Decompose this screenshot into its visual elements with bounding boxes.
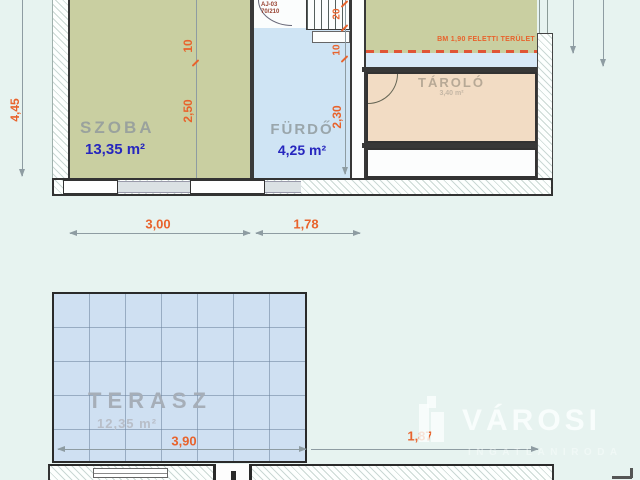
attic-room-upper-area <box>366 0 537 53</box>
dimension-line-szoba-vertical <box>196 0 197 178</box>
szoba-label: SZOBA <box>80 118 155 138</box>
lower-right-wall-corner <box>612 476 632 479</box>
left-exterior-wall <box>52 0 70 196</box>
watermark-brand: VÁROSI <box>462 404 601 438</box>
right-railing-lines <box>539 0 548 33</box>
lower-window <box>93 468 168 478</box>
lower-right-wall-corner-vertical <box>630 468 633 478</box>
dimension-line-left-height <box>22 0 23 176</box>
dimension-arrow-top-right-2 <box>603 0 604 66</box>
height-note-label: BM 1,90 FELETTI TERÜLET <box>366 36 535 43</box>
dimension-label-furdo-width: 1,78 <box>293 217 318 232</box>
dimension-label-szoba-d1: 10 <box>181 39 195 52</box>
dimension-label-left-height: 4,45 <box>8 98 22 121</box>
door-tag-size: 70/210 <box>261 9 279 16</box>
dimension-label-stair-d2: 10 <box>332 44 343 55</box>
terasz-label: TERASZ <box>88 388 212 414</box>
dimension-label-right-width: 1,87 <box>407 429 432 444</box>
glazing-band-1 <box>118 181 190 193</box>
tarolo-area: 3,40 m² <box>366 90 537 97</box>
furdo-area: 4,25 m² <box>254 142 350 158</box>
floorplan-canvas: BM 1,90 FELETTI TERÜLET SZOBA 13,35 m² F… <box>0 0 640 480</box>
right-exterior-wall <box>537 33 553 196</box>
attic-room-lower-strip <box>366 53 537 67</box>
dimension-arrow-top-right-1 <box>573 0 574 53</box>
middle-wall <box>350 0 366 178</box>
terasz-area: 12,35 m² <box>97 416 157 431</box>
tarolo-label: TÁROLÓ <box>366 75 537 90</box>
dimension-line-terasz-width <box>58 449 306 450</box>
door-tag-code: AJ-03 <box>261 2 277 9</box>
lower-door-post <box>231 471 236 480</box>
glazing-band-2 <box>265 181 301 193</box>
szoba-area: 13,35 m² <box>85 141 145 158</box>
window-szoba-right <box>190 180 265 194</box>
dimension-label-furdo-height: 2,30 <box>330 105 344 128</box>
dimension-line-szoba-width <box>70 233 250 234</box>
dimension-line-right-width <box>311 449 538 450</box>
watermark-logo-icon-flag <box>427 396 436 408</box>
dimension-label-stair-d1: 20 <box>332 8 343 19</box>
dimension-label-terasz-width: 3,90 <box>171 434 196 449</box>
right-section-lower-room <box>366 148 537 178</box>
dimension-label-szoba-width: 3,00 <box>145 217 170 232</box>
window-szoba-left <box>63 180 118 194</box>
dimension-label-szoba-d2: 2,50 <box>181 99 195 122</box>
dimension-line-furdo-width <box>256 233 360 234</box>
watermark-logo-icon-block <box>431 412 444 442</box>
